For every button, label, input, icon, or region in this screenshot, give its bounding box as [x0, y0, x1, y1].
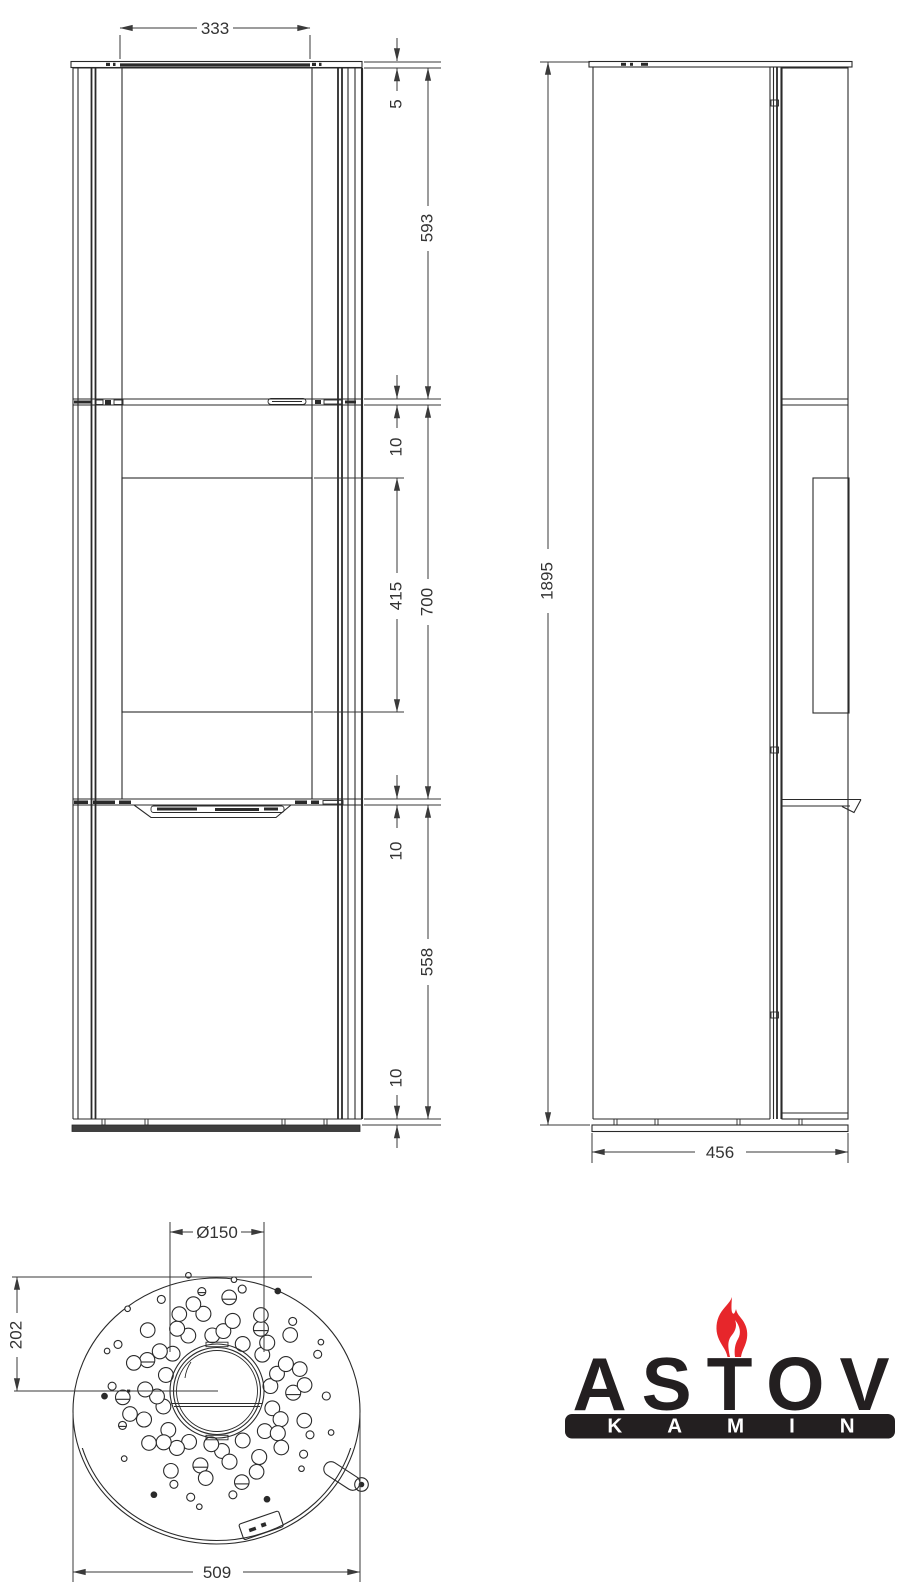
dim-lower-section: 558	[418, 948, 437, 976]
perforation-hole	[140, 1323, 155, 1338]
dim-gap-lower: 10	[387, 842, 406, 861]
side-door-seam	[771, 67, 781, 1119]
perforation-hole	[151, 1492, 157, 1498]
perforation-hole	[238, 1285, 246, 1293]
perforation-hole	[293, 1362, 308, 1377]
perforation-hole	[157, 1295, 165, 1303]
side-top-plate-marks	[621, 63, 648, 66]
perforation-hole	[198, 1288, 206, 1296]
logo-brand: ASTOV	[572, 1342, 904, 1426]
perforation-hole	[152, 1344, 167, 1359]
technical-drawing: 333 5 10 415 10 10	[0, 0, 909, 1591]
side-rear-panel	[782, 68, 861, 1119]
perforation-hole	[299, 1466, 305, 1472]
dim-flue-diameter: Ø150	[196, 1223, 238, 1242]
front-glass-window	[122, 478, 312, 712]
perforation-hole	[235, 1433, 250, 1448]
perforation-hole	[275, 1288, 281, 1294]
dim-upper-section: 593	[418, 214, 437, 242]
side-view	[589, 62, 861, 1132]
perforation-hole	[297, 1378, 312, 1393]
dim-top-plate: 5	[387, 99, 406, 108]
perforation-hole	[142, 1436, 157, 1451]
perforation-hole	[170, 1321, 185, 1336]
perforation-hole	[249, 1465, 264, 1480]
perforation-hole	[114, 1340, 122, 1348]
perforation-hole	[254, 1308, 269, 1323]
perforation-hole	[235, 1475, 250, 1490]
top-dimensions: Ø150 202 509	[7, 1222, 361, 1582]
logo-subtitle: KAMIN	[607, 1415, 899, 1438]
front-feet	[102, 1119, 327, 1125]
handle-recess	[134, 805, 291, 818]
dim-gap-upper: 10	[387, 438, 406, 457]
perforation-hole	[170, 1480, 178, 1488]
perforation-hole	[119, 1421, 127, 1429]
perforation-hole	[172, 1307, 187, 1322]
perforation-hole	[121, 1456, 127, 1462]
dim-base-gap: 10	[387, 1069, 406, 1088]
perforation-hole	[127, 1356, 142, 1371]
front-view	[71, 62, 362, 1132]
perforation-hole	[231, 1277, 237, 1283]
drawing-page: 333 5 10 415 10 10	[0, 0, 909, 1591]
side-top-plate	[589, 62, 852, 68]
perforation-hole	[306, 1431, 314, 1439]
perforation-hole	[222, 1454, 237, 1469]
perforation-hole	[222, 1290, 237, 1305]
front-divider-lower	[73, 799, 362, 818]
perforation-hole	[102, 1393, 108, 1399]
perforation-hole	[297, 1413, 312, 1428]
top-tab	[239, 1511, 284, 1540]
dim-flue-offset: 202	[7, 1321, 26, 1349]
logo: ASTOV KAMIN	[565, 1297, 905, 1439]
front-base-plate	[72, 1125, 360, 1132]
side-base-plate	[592, 1125, 848, 1132]
front-dimensions: 333 5 10 415 10 10	[120, 19, 441, 1148]
perforation-hole	[225, 1313, 240, 1328]
perforation-hole	[138, 1382, 153, 1397]
perforation-hole	[260, 1335, 275, 1350]
perforation-hole	[253, 1321, 268, 1336]
perforation-hole	[164, 1464, 179, 1479]
dim-middle-section: 700	[418, 588, 437, 616]
dim-door-width: 333	[201, 19, 229, 38]
perforation-hole	[257, 1424, 272, 1439]
perforation-hole	[322, 1392, 330, 1400]
perforation-hole	[278, 1357, 293, 1372]
side-dimensions: 1895 456	[538, 62, 849, 1163]
perforation-hole	[289, 1317, 297, 1325]
dim-width: 509	[203, 1563, 231, 1582]
perforation-hole	[187, 1493, 195, 1501]
top-front-double-edge	[77, 1282, 357, 1541]
perforation-hole	[314, 1350, 322, 1358]
perforation-hole	[125, 1306, 131, 1312]
top-view	[14, 1273, 368, 1545]
perforation-hole	[137, 1412, 152, 1427]
dim-height: 1895	[538, 562, 557, 600]
side-rear-inset	[813, 478, 849, 713]
perforation-hole	[274, 1440, 289, 1455]
dim-glass-height: 415	[387, 582, 406, 610]
perforation-hole	[123, 1407, 138, 1422]
perforation-hole	[197, 1504, 203, 1510]
perforation-hole	[104, 1348, 110, 1354]
front-panel-seams	[78, 68, 355, 1119]
side-feet	[614, 1119, 802, 1125]
perforation-hole	[156, 1435, 171, 1450]
perforation-hole	[198, 1471, 213, 1486]
perforation-hole	[229, 1491, 237, 1499]
dim-depth: 456	[706, 1143, 734, 1162]
top-body-outline	[73, 1278, 360, 1544]
perforation-hole	[328, 1430, 334, 1436]
perforation-hole	[270, 1426, 285, 1441]
perforation-hole	[273, 1412, 288, 1427]
perforation-hole	[318, 1339, 324, 1345]
perforation-hole	[108, 1382, 116, 1390]
perforation-hole	[264, 1496, 270, 1502]
perforation-hole	[252, 1450, 267, 1465]
front-body-outline	[73, 68, 362, 1119]
perforation-hole	[140, 1353, 155, 1368]
front-divider-upper	[73, 399, 362, 406]
side-body-outline	[593, 67, 770, 1119]
perforation-hole	[300, 1450, 308, 1458]
perforation-hole	[186, 1297, 201, 1312]
perforation-hole	[283, 1328, 298, 1343]
